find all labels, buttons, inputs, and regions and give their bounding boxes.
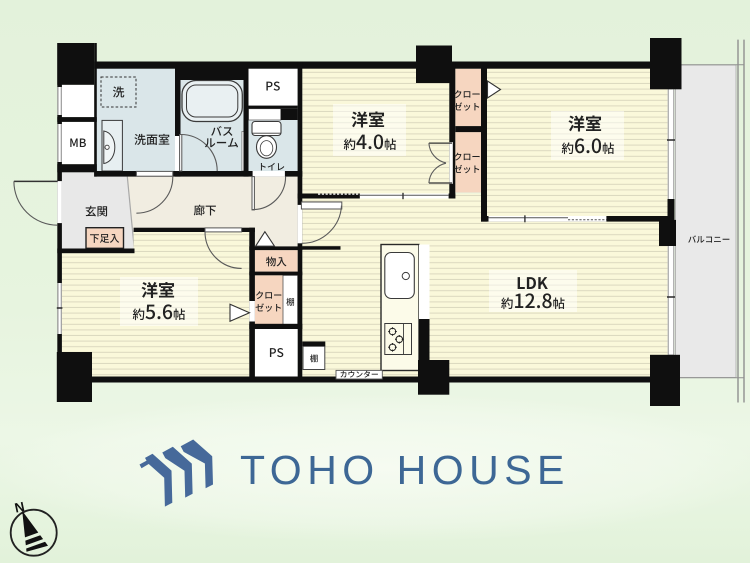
svg-text:TOHO HOUSE: TOHO HOUSE [240,447,570,493]
